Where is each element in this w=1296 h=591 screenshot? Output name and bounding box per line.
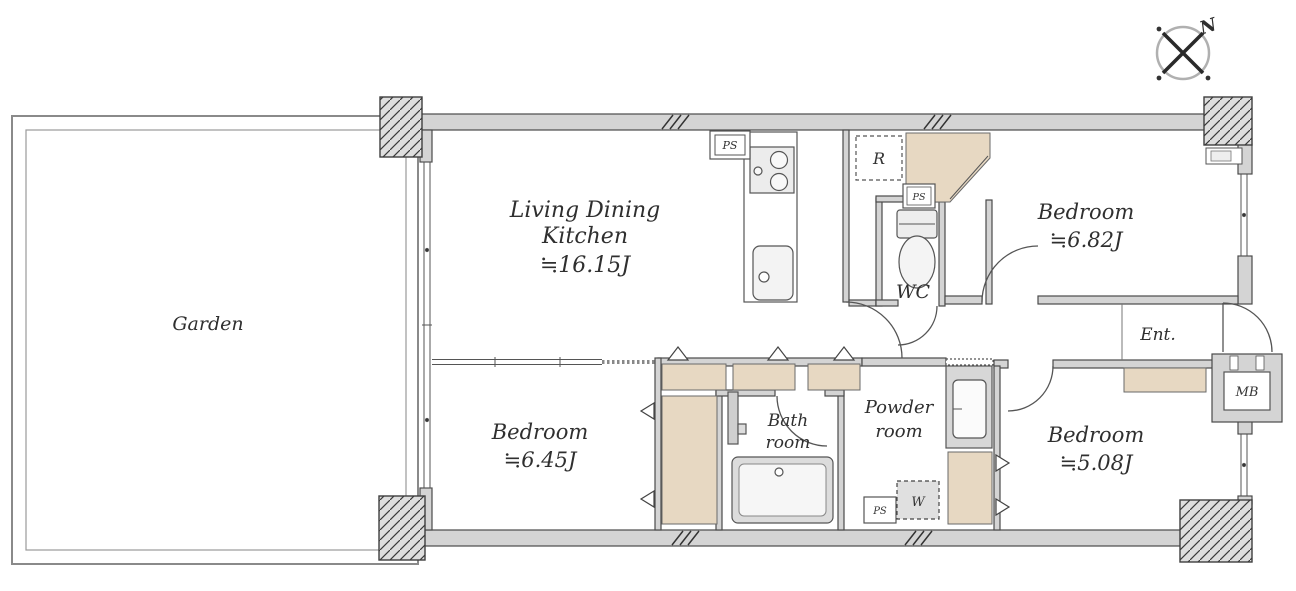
washing-machine-label: W xyxy=(911,495,926,510)
wall-corridor-north-a xyxy=(945,296,982,304)
floor-plan-page: Garden xyxy=(0,0,1296,591)
burner-icon xyxy=(754,167,762,175)
closet-bed2 xyxy=(662,396,717,524)
wall-powder-top xyxy=(862,358,946,366)
wall-bath-top-b xyxy=(825,390,844,396)
refrigerator-label: R xyxy=(872,149,885,168)
compass-icon: N xyxy=(1157,14,1221,81)
wall-bath-top-a xyxy=(716,390,775,396)
window-bedroom-bottom-right xyxy=(1239,434,1250,496)
wall-ldk-right xyxy=(843,130,849,302)
wall-bath-right xyxy=(838,388,844,530)
bath-faucet-icon xyxy=(738,424,746,434)
bathroom-label-line1: Bath xyxy=(767,411,808,431)
pillar-bottom-left xyxy=(379,496,425,560)
floor-plan-drawing: Garden xyxy=(0,0,1296,591)
bedroom-bottom-left-area: ≒6.45J xyxy=(504,448,578,472)
window-bedroom-top-right xyxy=(1239,174,1250,256)
pipe-shaft-mid-label: PS xyxy=(912,192,926,203)
wc-label: WC xyxy=(896,281,931,303)
kitchen-sink-icon xyxy=(753,246,793,300)
garden-area: Garden xyxy=(12,116,418,564)
wall-corridor-north-b xyxy=(1038,296,1238,304)
vent-box-inner xyxy=(1211,151,1231,161)
powder-label-line2: room xyxy=(875,421,922,442)
entrance-step xyxy=(1124,368,1206,392)
garden-label: Garden xyxy=(172,313,243,335)
powder-folding-door xyxy=(946,359,993,365)
powder-label-line1: Powder xyxy=(864,397,935,418)
bedroom-top-right-label: Bedroom xyxy=(1037,200,1135,224)
pipe-shaft-top-label: PS xyxy=(722,139,738,152)
closet-row-3 xyxy=(808,364,860,390)
burner-icon xyxy=(771,174,788,191)
closet-row-2 xyxy=(733,364,795,390)
wall-bed1-left xyxy=(986,200,992,304)
wall-wc-bottom-left xyxy=(876,300,898,306)
wall-top xyxy=(418,114,1210,130)
wall-right-mid xyxy=(1238,256,1252,304)
faucet-icon xyxy=(759,272,769,282)
bedroom-bottom-right-label: Bedroom xyxy=(1047,423,1145,447)
powder-fixtures xyxy=(946,366,992,448)
bathroom-label-line2: room xyxy=(766,433,811,453)
wall-corridor-south-b xyxy=(1053,360,1238,368)
pillar-bottom-right xyxy=(1180,500,1252,562)
pillar-top-left xyxy=(380,97,422,157)
entrance-label: Ent. xyxy=(1139,325,1176,345)
wall-wc-left xyxy=(876,198,882,306)
bedroom-top-right-area: ≒6.82J xyxy=(1050,228,1124,252)
ldk-area: ≒16.15J xyxy=(540,253,631,278)
wall-bottom xyxy=(422,530,1184,546)
bedroom-bottom-left-label: Bedroom xyxy=(491,420,589,444)
meter-box-label: MB xyxy=(1235,385,1259,400)
burner-icon xyxy=(771,152,788,169)
pipe-shaft-bottom-label: PS xyxy=(872,506,887,517)
pillar-top-right xyxy=(1204,97,1252,145)
closet-row-1 xyxy=(662,364,726,390)
wc-fixtures xyxy=(897,210,937,288)
bedroom-bottom-right-area: ≒5.08J xyxy=(1060,451,1134,475)
bathtub-drain-icon xyxy=(775,468,783,476)
ldk-label-line1: Living Dining xyxy=(509,198,661,223)
wall-bed2-right xyxy=(655,358,661,530)
meter-box: MB xyxy=(1212,354,1282,422)
wall-wc-right xyxy=(939,198,945,306)
kitchen xyxy=(744,132,797,302)
shower-counter xyxy=(728,392,738,444)
closet-bed3 xyxy=(948,452,992,524)
ldk-label-line2: Kitchen xyxy=(541,224,628,249)
